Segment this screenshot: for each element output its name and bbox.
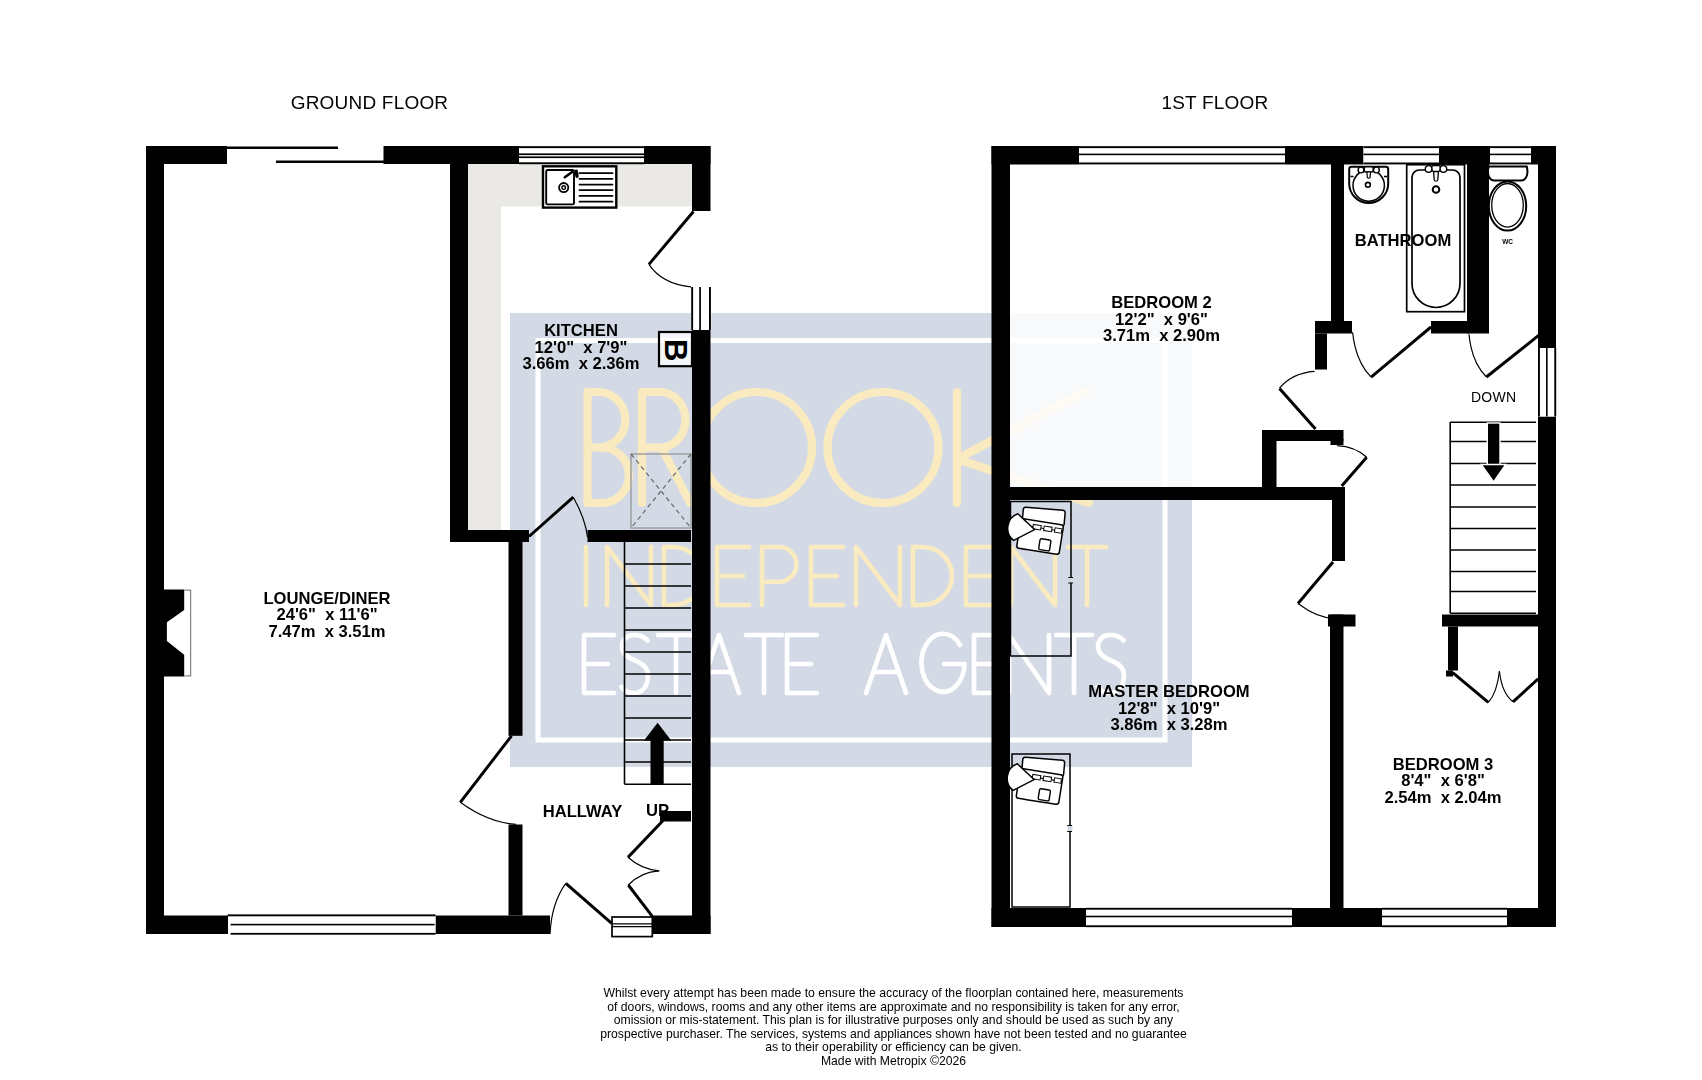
svg-text:prospective purchaser. The ser: prospective purchaser. The services, sys… — [600, 1027, 1187, 1041]
svg-text:HALLWAY: HALLWAY — [543, 802, 623, 821]
svg-text:1ST FLOOR: 1ST FLOOR — [1161, 92, 1268, 113]
svg-text:UP: UP — [646, 801, 669, 820]
svg-text:3.71m x 2.90m: 3.71m x 2.90m — [1103, 326, 1220, 345]
svg-text:of doors, windows, rooms and a: of doors, windows, rooms and any other i… — [607, 1000, 1179, 1014]
svg-text:7.47m x 3.51m: 7.47m x 3.51m — [268, 622, 385, 641]
svg-text:omission or mis-statement. Thi: omission or mis-statement. This plan is … — [614, 1013, 1174, 1027]
svg-text:Made with Metropix ©2026: Made with Metropix ©2026 — [821, 1054, 966, 1068]
svg-text:3.66m x 2.36m: 3.66m x 2.36m — [522, 354, 639, 373]
svg-text:2.54m x 2.04m: 2.54m x 2.04m — [1384, 788, 1501, 807]
svg-text:B: B — [658, 339, 693, 361]
svg-text:as to their operability or eff: as to their operability or efficiency ca… — [765, 1040, 1022, 1054]
svg-text:WC: WC — [1502, 238, 1513, 245]
svg-text:DOWN: DOWN — [1471, 389, 1517, 405]
svg-text:GROUND FLOOR: GROUND FLOOR — [291, 92, 449, 113]
svg-text:BATHROOM: BATHROOM — [1355, 231, 1451, 250]
svg-text:3.86m x 3.28m: 3.86m x 3.28m — [1110, 715, 1227, 734]
svg-text:Whilst every attempt has been: Whilst every attempt has been made to en… — [604, 986, 1184, 1000]
